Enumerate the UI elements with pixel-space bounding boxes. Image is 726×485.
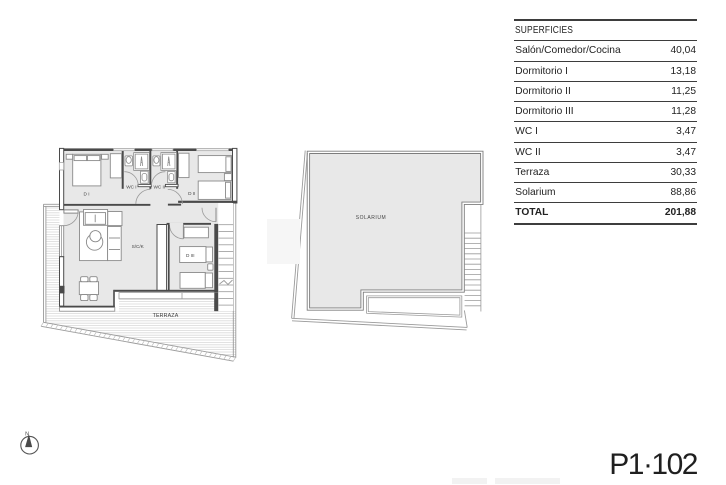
svg-text:D III: D III bbox=[186, 253, 195, 258]
svg-text:WC I: WC I bbox=[126, 184, 136, 189]
svg-text:S/C/K: S/C/K bbox=[132, 244, 145, 249]
svg-text:D II: D II bbox=[188, 191, 195, 196]
svg-text:WC II: WC II bbox=[153, 184, 165, 189]
svg-text:SOLARIUM: SOLARIUM bbox=[356, 215, 387, 221]
svg-text:D I: D I bbox=[84, 191, 90, 196]
svg-text:TERRAZA: TERRAZA bbox=[153, 313, 179, 319]
svg-text:N: N bbox=[25, 431, 29, 437]
